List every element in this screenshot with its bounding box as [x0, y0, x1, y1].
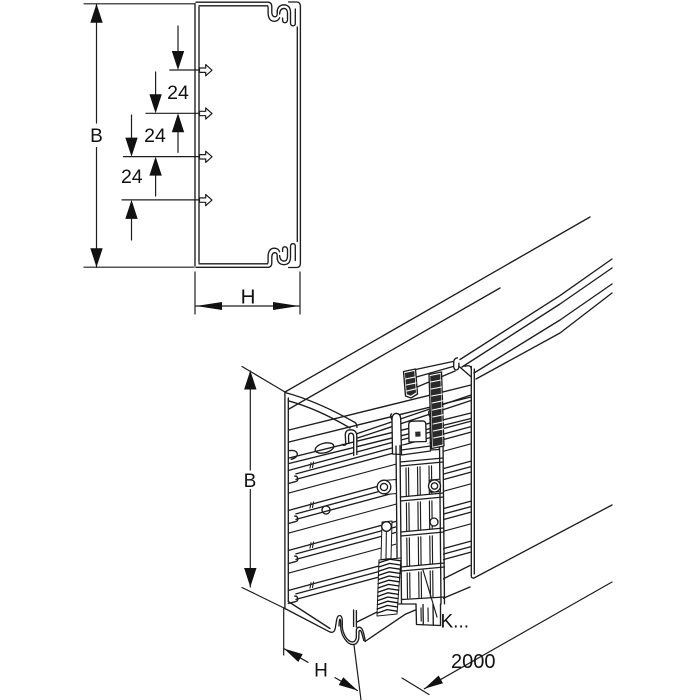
svg-text:24: 24 [167, 82, 189, 104]
svg-text:H: H [241, 286, 256, 309]
svg-text:B: B [90, 126, 103, 147]
svg-text:H: H [314, 661, 328, 682]
svg-text:24: 24 [121, 166, 143, 188]
svg-text:24: 24 [144, 125, 166, 147]
svg-text:B: B [244, 471, 257, 492]
svg-text:K...: K... [441, 612, 470, 633]
svg-text:2000: 2000 [451, 651, 496, 673]
